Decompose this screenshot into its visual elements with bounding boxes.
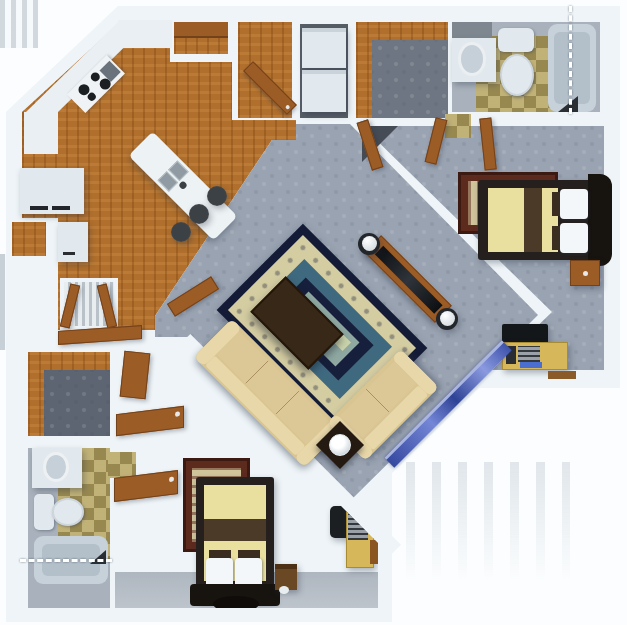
- nightstand-knob: [583, 271, 588, 276]
- bathroom2-sink: [43, 452, 69, 482]
- bathroom2-curtain-rod: [20, 559, 112, 562]
- bathroom1-toilet-bowl: [500, 54, 534, 96]
- bed2-runner: [204, 519, 266, 541]
- bathroom2-toilet-bowl: [52, 498, 84, 526]
- bathroom1-curtain-rod: [569, 6, 572, 114]
- pantry-shelf: [174, 22, 228, 38]
- bedroom1-computer: [518, 346, 540, 362]
- bed1-runner: [524, 188, 542, 252]
- hamper-cloth: [279, 586, 289, 594]
- bathroom1-sink: [458, 42, 486, 76]
- closet-top-right-carpet: [372, 40, 448, 118]
- bed1-nightstand: [570, 260, 600, 286]
- kitchen-counter-left: [24, 112, 58, 154]
- dryer: [302, 70, 346, 112]
- lamp-globe-1: [362, 236, 377, 251]
- fridge-handle-1: [30, 206, 48, 210]
- bar-stool-3: [171, 222, 191, 242]
- bed1-pillow-2: [560, 223, 588, 253]
- bar-stool-1: [207, 186, 227, 206]
- louver-door-left: [60, 283, 80, 328]
- bathroom1-counter-back: [452, 22, 492, 38]
- dishwasher-vent: [63, 252, 75, 255]
- washer: [302, 28, 346, 68]
- bed1-headboard: [588, 174, 612, 266]
- bar-stool-2: [189, 204, 209, 224]
- bathroom1-toilet-tank: [498, 28, 534, 52]
- bedroom1-keyboard: [520, 362, 542, 368]
- floor-plan-3d-render: [0, 0, 627, 625]
- entry-door-knob: [285, 104, 291, 110]
- bedroom2-desk-side: [370, 540, 378, 564]
- bathroom2-floor: [28, 448, 110, 608]
- island-faucet: [178, 180, 188, 190]
- bed1-pillow-1: [560, 189, 588, 219]
- closet-left-floor: [12, 222, 46, 256]
- fridge-handle-2: [52, 206, 70, 210]
- walkin-closet-carpet: [44, 370, 110, 436]
- louver-door-right: [97, 283, 117, 328]
- bedroom1-floor-mat: [548, 371, 576, 379]
- dishwasher: [58, 222, 88, 262]
- louvered-closet: [60, 278, 118, 330]
- refrigerator: [20, 168, 84, 214]
- bed1-mattress: [488, 188, 558, 252]
- exterior-stairs-top-left: [0, 0, 38, 48]
- bedroom1-door-tile: [445, 114, 471, 138]
- bathroom1-tub-inner: [554, 32, 590, 104]
- bathroom2-toilet-tank: [34, 494, 54, 530]
- lamp-globe-2: [440, 311, 455, 326]
- decorative-bowl: [329, 434, 351, 456]
- kitchen-counter-top: [118, 20, 172, 48]
